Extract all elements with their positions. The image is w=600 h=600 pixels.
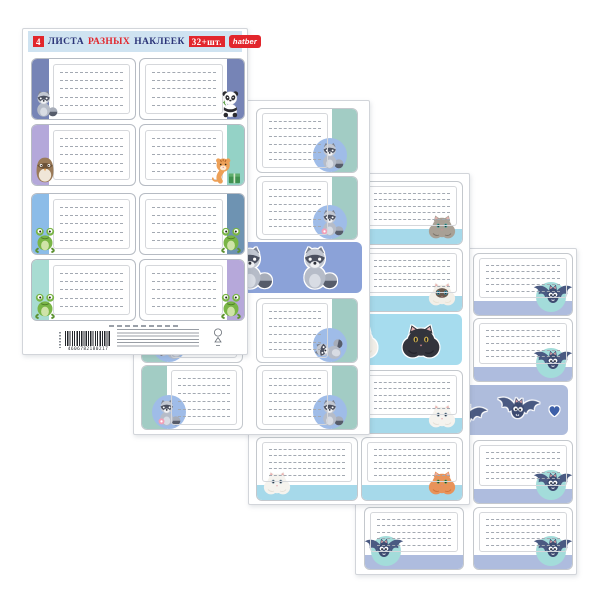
writing-line (152, 289, 216, 290)
writing-line (486, 271, 560, 272)
writing-line (269, 385, 321, 386)
writing-line (152, 146, 216, 147)
label-writing-area (262, 181, 328, 235)
name-label-sticker (256, 298, 358, 363)
writing-line (377, 532, 451, 533)
label-writing-area (53, 199, 130, 249)
label-animal (32, 155, 58, 184)
writing-line (60, 171, 123, 172)
writing-line (486, 356, 560, 357)
raccoon-icon (32, 89, 58, 118)
writing-line (486, 330, 560, 331)
writing-line (269, 475, 345, 476)
label-writing-area (145, 199, 223, 249)
name-label-sticker (473, 507, 573, 570)
writing-line (374, 212, 450, 213)
cover-footer: 4606782180217 (23, 322, 247, 354)
writing-line (269, 409, 321, 410)
label-animal (212, 156, 244, 184)
recycling-icons (213, 328, 223, 348)
writing-line (269, 211, 321, 212)
name-label-sticker (31, 124, 136, 186)
label-writing-area (479, 512, 567, 552)
writing-line (60, 273, 123, 274)
fine-print-block (117, 329, 199, 348)
writing-line (269, 378, 321, 379)
writing-line (152, 223, 216, 224)
name-label-sticker (256, 437, 358, 501)
writing-line (269, 226, 321, 227)
name-label-sticker (139, 58, 245, 120)
writing-line (374, 193, 450, 194)
label-writing-area (370, 512, 458, 552)
header-word-stickers: НАКЛЕЕК (134, 37, 185, 47)
name-label-sticker (141, 365, 243, 430)
writing-line (152, 72, 216, 73)
label-animal (32, 290, 58, 319)
barcode-number: 4606782180217 (63, 347, 113, 352)
vertical-code (59, 332, 61, 348)
label-writing-area (479, 445, 567, 486)
writing-line (269, 204, 321, 205)
writing-line (269, 152, 321, 153)
writing-line (152, 105, 216, 106)
barcode-icon (65, 331, 111, 346)
label-writing-area (171, 370, 237, 425)
owl-icon (32, 155, 58, 184)
writing-line (60, 232, 123, 233)
label-writing-area (479, 258, 567, 298)
writing-line (486, 532, 560, 533)
writing-line (269, 144, 321, 145)
writing-line (377, 538, 451, 539)
writing-line (152, 154, 216, 155)
writing-line (374, 468, 450, 469)
writing-line (374, 219, 450, 220)
writing-line (152, 281, 216, 282)
writing-line (60, 80, 123, 81)
writing-line (374, 273, 450, 274)
pack-header: 4 ЛИСТА РАЗНЫХ НАКЛЕЕК 32+шт. hatber (28, 31, 242, 52)
qty-badge: 32+шт. (189, 36, 225, 47)
writing-line (60, 138, 123, 139)
writing-line (152, 240, 216, 241)
writing-line (60, 281, 123, 282)
writing-line (152, 298, 216, 299)
name-label-sticker (31, 259, 136, 321)
writing-line (374, 455, 450, 456)
header-word-sheets: ЛИСТА (48, 37, 84, 47)
writing-line (486, 538, 560, 539)
bat-icon (493, 391, 542, 429)
label-writing-area (53, 64, 130, 114)
writing-line (60, 298, 123, 299)
writing-line (60, 240, 123, 241)
writing-line (152, 215, 216, 216)
frog-icon (32, 224, 58, 253)
writing-line (60, 163, 123, 164)
label-writing-area (53, 130, 130, 180)
name-label-sticker (31, 193, 136, 255)
writing-line (486, 525, 560, 526)
writing-line (486, 452, 560, 453)
writing-line (374, 266, 450, 267)
label-writing-area (367, 375, 457, 415)
writing-line (178, 378, 230, 379)
writing-line (178, 393, 230, 394)
sheet-cover: 4 ЛИСТА РАЗНЫХ НАКЛЕЕК 32+шт. hatber (22, 28, 248, 355)
writing-line (486, 519, 560, 520)
count-badge: 4 (33, 36, 44, 47)
frog-icon (218, 224, 244, 253)
name-label-sticker (473, 440, 573, 504)
banner-sticker (400, 319, 442, 361)
name-label-sticker (139, 259, 245, 321)
writing-line (374, 475, 450, 476)
writing-line (60, 88, 123, 89)
name-label-sticker (139, 193, 245, 255)
writing-line (269, 349, 321, 350)
heart-icon (547, 403, 562, 418)
writing-line (60, 154, 123, 155)
writing-line (60, 207, 123, 208)
writing-line (486, 278, 560, 279)
writing-line (486, 478, 560, 479)
label-writing-area (262, 370, 328, 425)
writing-line (486, 343, 560, 344)
writing-line (374, 199, 450, 200)
writing-line (269, 468, 345, 469)
label-animal (218, 224, 244, 253)
writing-line (60, 146, 123, 147)
writing-line (486, 545, 560, 546)
writing-line (374, 279, 450, 280)
product-photo-sticker-pack: 4 ЛИСТА РАЗНЫХ НАКЛЕЕК 32+шт. hatber (0, 0, 600, 600)
writing-line (486, 336, 560, 337)
writing-line (152, 171, 216, 172)
writing-line (269, 189, 321, 190)
label-animal (218, 290, 244, 319)
name-label-sticker (256, 176, 358, 240)
label-writing-area (262, 442, 352, 482)
name-label-sticker (473, 318, 573, 382)
label-writing-area (367, 186, 457, 226)
label-writing-area (262, 113, 328, 168)
label-writing-area (262, 303, 328, 358)
label-writing-area (53, 265, 130, 315)
header-word-different: РАЗНЫХ (88, 37, 130, 47)
writing-line (377, 519, 451, 520)
writing-line (486, 291, 560, 292)
writing-line (178, 385, 230, 386)
writing-line (269, 393, 321, 394)
name-label-sticker (361, 370, 463, 434)
label-writing-area (145, 64, 223, 114)
writing-line (60, 215, 123, 216)
brand-logo: hatber (229, 35, 261, 48)
writing-line (374, 382, 450, 383)
writing-line (152, 80, 216, 81)
writing-line (486, 284, 560, 285)
label-writing-area (367, 442, 457, 482)
label-writing-area (479, 323, 567, 364)
writing-line (486, 472, 560, 473)
writing-line (60, 306, 123, 307)
writing-line (269, 462, 345, 463)
writing-line (486, 265, 560, 266)
writing-line (486, 458, 560, 459)
writing-line (178, 409, 230, 410)
writing-line (374, 408, 450, 409)
writing-line (152, 163, 216, 164)
writing-line (60, 105, 123, 106)
writing-line (269, 196, 321, 197)
label-writing-area (367, 253, 457, 293)
writing-line (269, 401, 321, 402)
writing-line (178, 401, 230, 402)
writing-line (374, 286, 450, 287)
writing-line (152, 207, 216, 208)
panda-icon (218, 89, 244, 118)
writing-line (374, 260, 450, 261)
fine-print-line (109, 325, 181, 327)
writing-line (374, 395, 450, 396)
writing-line (269, 334, 321, 335)
recycle-circle-icon (213, 328, 223, 348)
frog-icon (218, 290, 244, 319)
writing-line (269, 128, 321, 129)
name-label-sticker (364, 507, 464, 570)
tiger-icon (212, 156, 244, 184)
name-label-sticker (256, 365, 358, 430)
writing-line (152, 138, 216, 139)
writing-line (377, 525, 451, 526)
name-label-sticker (31, 58, 136, 120)
writing-line (269, 121, 321, 122)
label-animal (32, 89, 58, 118)
writing-line (269, 326, 321, 327)
writing-line (269, 449, 345, 450)
name-label-sticker (139, 124, 245, 186)
writing-line (374, 206, 450, 207)
writing-line (60, 97, 123, 98)
writing-line (269, 159, 321, 160)
cat-icon (400, 319, 442, 361)
writing-line (152, 273, 216, 274)
raccoon-icon (296, 244, 338, 290)
writing-line (374, 462, 450, 463)
label-writing-area (145, 265, 223, 315)
writing-line (60, 72, 123, 73)
writing-line (269, 318, 321, 319)
name-label-sticker (361, 248, 463, 312)
writing-line (374, 449, 450, 450)
banner-sticker (493, 391, 542, 429)
name-label-sticker (361, 437, 463, 501)
writing-line (152, 97, 216, 98)
recycle-triangle-icon (215, 338, 221, 346)
label-animal (32, 224, 58, 253)
writing-line (152, 306, 216, 307)
writing-line (269, 311, 321, 312)
banner-sticker (296, 244, 338, 290)
writing-line (269, 219, 321, 220)
frog-icon (32, 290, 58, 319)
writing-line (374, 401, 450, 402)
writing-line (269, 455, 345, 456)
writing-line (374, 388, 450, 389)
writing-line (178, 416, 230, 417)
writing-line (269, 136, 321, 137)
writing-line (152, 88, 216, 89)
name-label-sticker (473, 253, 573, 316)
writing-line (152, 232, 216, 233)
writing-line (60, 289, 123, 290)
name-label-sticker (361, 181, 463, 245)
writing-line (60, 223, 123, 224)
label-animal (218, 89, 244, 118)
writing-line (269, 342, 321, 343)
writing-line (486, 350, 560, 351)
writing-line (486, 465, 560, 466)
writing-line (377, 545, 451, 546)
name-label-sticker (256, 108, 358, 173)
writing-line (269, 416, 321, 417)
banner-sticker (547, 403, 562, 418)
